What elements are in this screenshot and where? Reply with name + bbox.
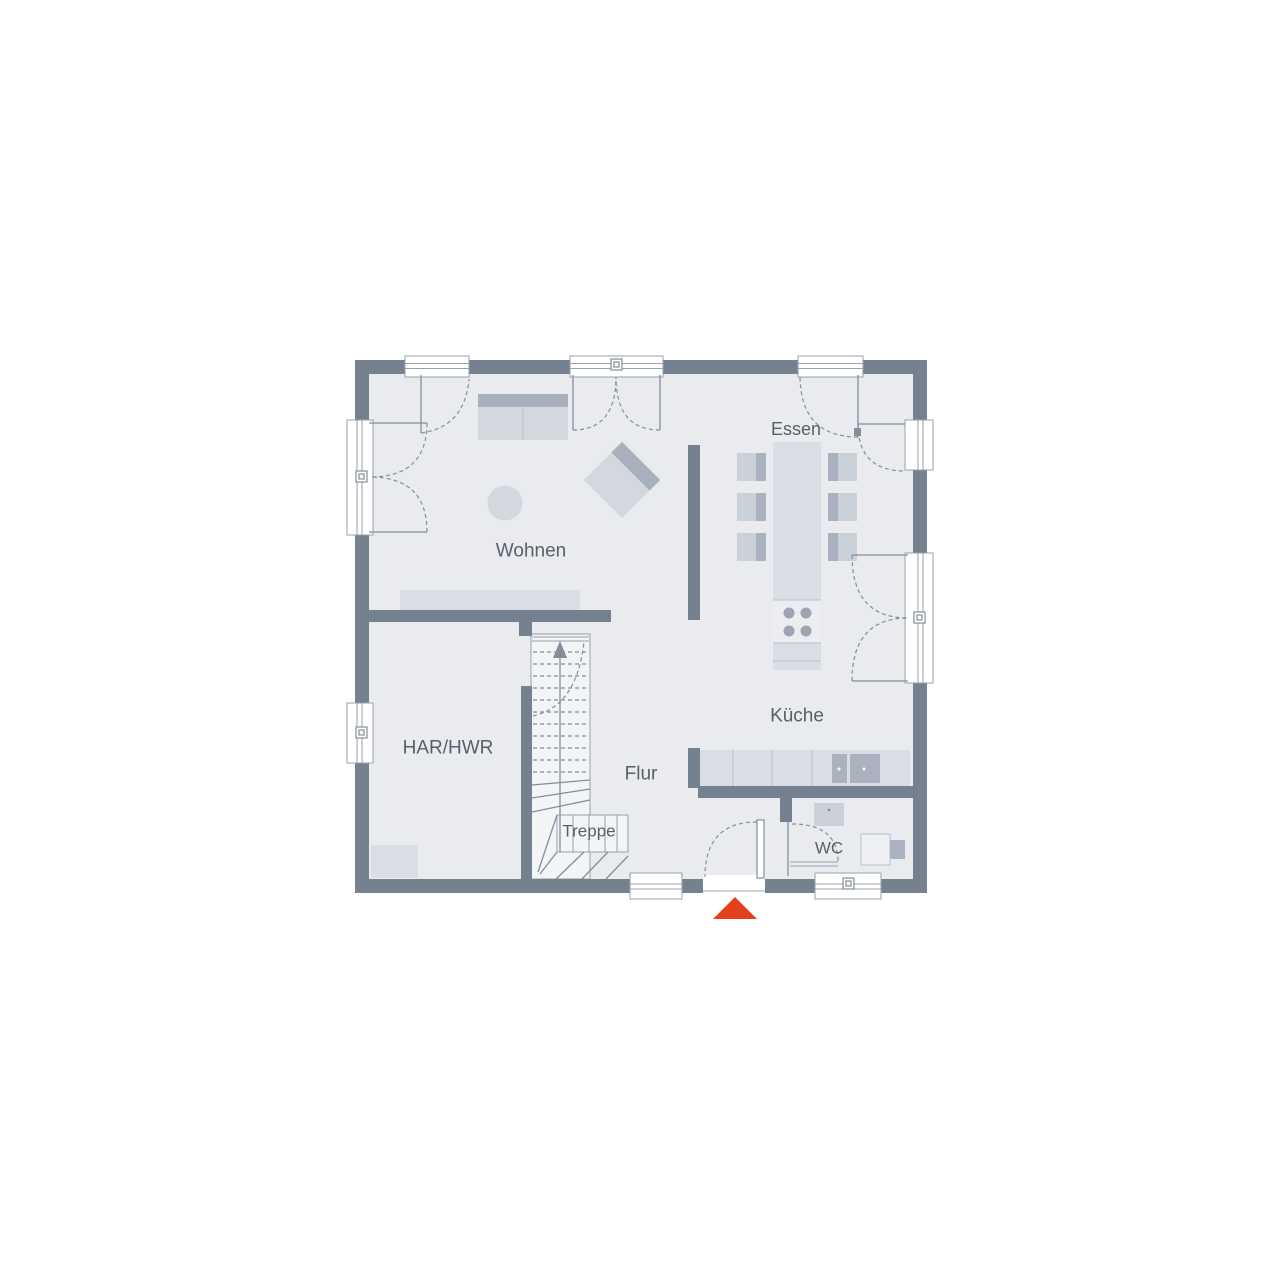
label-treppe: Treppe [562, 822, 615, 841]
wall-counter-stub [688, 748, 700, 788]
french-door-north [570, 356, 663, 377]
wc-toilet [861, 834, 890, 865]
french-door-east [905, 553, 933, 683]
sideboard [400, 590, 580, 611]
har-equipment [371, 845, 418, 878]
floor-plan: Essen Wohnen HAR/HWR Flur Treppe Küche W… [0, 0, 1280, 1280]
wall-wc-stub [780, 798, 792, 822]
wc-toilet-tank [890, 840, 905, 859]
cooktop [773, 600, 821, 643]
sofa-backrest [478, 394, 568, 407]
wc-sink [814, 803, 844, 826]
wall-kueche-flur [698, 786, 913, 798]
window-wc-south [815, 873, 881, 899]
label-flur: Flur [625, 764, 658, 785]
entrance-triangle-icon [713, 897, 757, 919]
wall-wohnen-har [369, 610, 611, 622]
door-essen-east [905, 420, 933, 470]
floor-plan-drawing: Essen Wohnen HAR/HWR Flur Treppe Küche W… [0, 0, 1280, 1280]
door-essen-north [798, 356, 863, 377]
window-har-west [347, 703, 373, 763]
french-door-west [347, 420, 373, 535]
wc-sink-tap [828, 809, 831, 812]
wall-dining-partition [688, 445, 700, 620]
wall-stub-stairs-top [519, 610, 532, 636]
window-flur-south [630, 873, 682, 899]
label-har-hwr: HAR/HWR [403, 738, 494, 759]
wall-stairs-left [521, 686, 532, 879]
label-wohnen: Wohnen [496, 541, 566, 562]
label-essen: Essen [771, 419, 821, 439]
label-wc: WC [815, 839, 843, 858]
entrance-opening [703, 875, 765, 894]
coffee-table [488, 486, 523, 521]
kitchen-sink [832, 754, 880, 783]
entrance-door-leaf [757, 820, 764, 878]
leaf-junction [854, 428, 861, 436]
window-wohnen-north [405, 356, 469, 377]
label-kueche: Küche [770, 706, 824, 727]
